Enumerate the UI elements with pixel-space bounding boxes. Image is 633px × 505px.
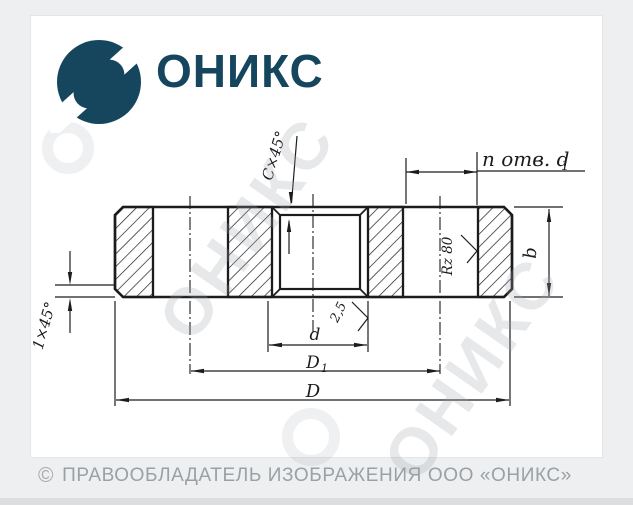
hatch-right-rim xyxy=(478,207,512,297)
label-bolt-circle-sub: 1 xyxy=(321,362,328,375)
logo-wordmark: ОНИКС xyxy=(156,44,324,98)
label-roughness-rz80: Rz 80 xyxy=(440,236,456,276)
label-roughness-2-5: 2,5 xyxy=(327,300,350,326)
label-outer-diameter: D xyxy=(305,381,321,402)
hatch-inner-left xyxy=(228,207,272,297)
label-bolt-circle: D xyxy=(305,353,320,373)
label-chamfer-top: C×45° xyxy=(258,129,290,183)
logo-mark-icon xyxy=(50,33,150,133)
product-image-page: C×45° n отв. d 1 b Rz 80 2,5 1×45° d D 1… xyxy=(0,0,633,505)
label-thickness: b xyxy=(520,247,541,259)
copyright-line: © ПРАВООБЛАДАТЕЛЬ ИЗОБРАЖЕНИЯ ООО «ОНИКС… xyxy=(38,464,572,488)
oniks-logo: ОНИКС xyxy=(50,33,390,133)
label-bore-diameter: d xyxy=(310,325,321,345)
copyright-text: ПРАВООБЛАДАТЕЛЬ ИЗОБРАЖЕНИЯ ООО «ОНИКС» xyxy=(62,465,572,487)
copyright-icon: © xyxy=(38,464,54,488)
label-holes: n отв. d xyxy=(482,147,569,171)
hatch-left-rim xyxy=(115,207,153,297)
label-chamfer-left: 1×45° xyxy=(29,300,60,352)
label-holes-sub: 1 xyxy=(561,159,569,174)
roughness-mark-2-5 xyxy=(352,302,368,331)
hatch-inner-right xyxy=(368,207,403,297)
